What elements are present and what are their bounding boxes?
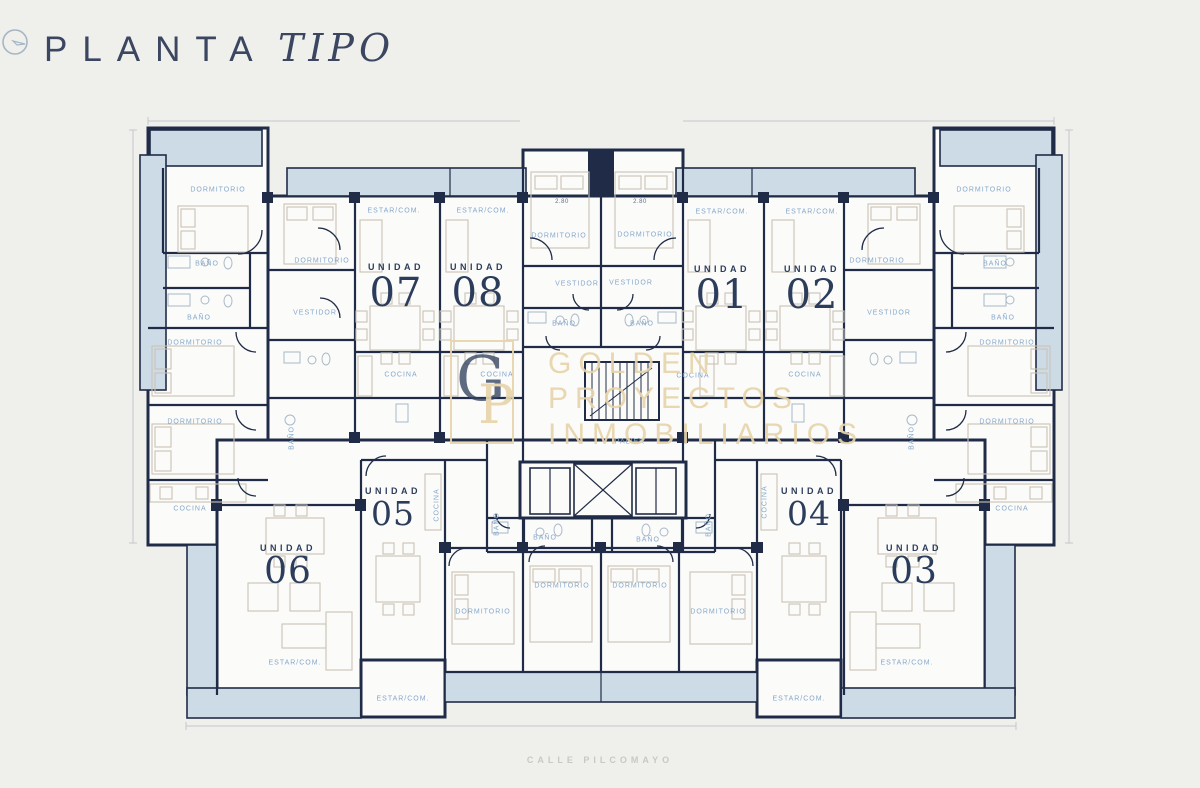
floorplan-drawing [0, 0, 1200, 788]
street-label: CALLE PILCOMAYO [0, 755, 1200, 765]
floorplan-page: PLANTA TIPO [0, 0, 1200, 788]
